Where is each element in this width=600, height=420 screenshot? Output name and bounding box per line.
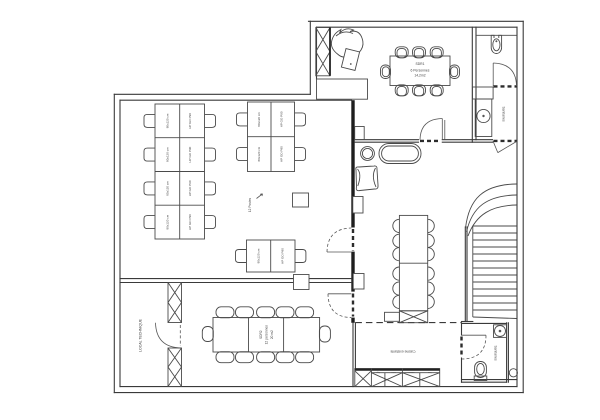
svg-text:14,2m2: 14,2m2 bbox=[414, 74, 425, 78]
svg-text:HP GO P90: HP GO P90 bbox=[188, 214, 192, 230]
svg-text:SDR1: SDR1 bbox=[415, 62, 424, 66]
svg-text:Cuisine existante: Cuisine existante bbox=[390, 350, 415, 354]
svg-text:LOCAL TECHNIQUE: LOCAL TECHNIQUE bbox=[139, 318, 143, 352]
svg-text:12 Postes: 12 Postes bbox=[248, 198, 252, 213]
svg-text:evier: evier bbox=[391, 371, 396, 373]
svg-text:80x120 cm: 80x120 cm bbox=[257, 112, 261, 127]
svg-text:cuisson: cuisson bbox=[408, 371, 415, 373]
svg-text:80x120 cm: 80x120 cm bbox=[165, 147, 169, 162]
svg-text:12 personnes: 12 personnes bbox=[265, 325, 269, 345]
svg-text:Sanitaires: Sanitaires bbox=[494, 345, 498, 360]
svg-text:6 Personnes: 6 Personnes bbox=[410, 69, 429, 73]
svg-text:20 m2: 20 m2 bbox=[270, 330, 274, 339]
svg-text:HP GO P90: HP GO P90 bbox=[280, 111, 284, 127]
svg-text:80x120 cm: 80x120 cm bbox=[165, 181, 169, 196]
svg-text:four: four bbox=[428, 371, 432, 373]
svg-text:Sanitaires: Sanitaires bbox=[502, 106, 506, 121]
svg-text:HP GO P90: HP GO P90 bbox=[281, 248, 285, 264]
svg-text:80x120 cm: 80x120 cm bbox=[165, 214, 169, 229]
svg-text:HP GO P90: HP GO P90 bbox=[188, 146, 192, 162]
svg-text:SDR2: SDR2 bbox=[259, 330, 263, 339]
svg-text:HP GO P90: HP GO P90 bbox=[188, 180, 192, 196]
svg-text:80x120 cm: 80x120 cm bbox=[257, 248, 261, 263]
svg-text:HP GO P90: HP GO P90 bbox=[280, 146, 284, 162]
svg-text:80x120 cm: 80x120 cm bbox=[257, 146, 261, 161]
svg-text:HP GO P90: HP GO P90 bbox=[188, 113, 192, 129]
svg-text:80x120 cm: 80x120 cm bbox=[165, 113, 169, 128]
